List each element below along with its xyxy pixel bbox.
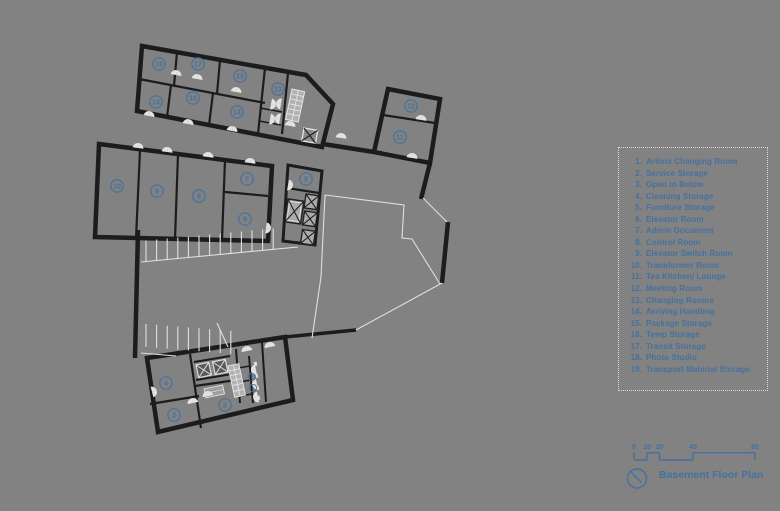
legend-item-label: Elevator Switch Room: [646, 248, 732, 260]
door-swing-icon: [192, 73, 204, 80]
legend-item-number: 10.: [625, 260, 642, 272]
room-label: 4: [160, 377, 172, 389]
legend-item-label: Changing Rooms: [646, 295, 714, 307]
legend-item-number: 1.: [625, 156, 642, 168]
svg-text:6: 6: [243, 217, 247, 224]
scale-label: 20: [656, 444, 664, 451]
legend-item-number: 8.: [625, 237, 642, 249]
legend-item: 15.Package Storage: [625, 318, 761, 330]
scale-label: 40: [689, 444, 697, 451]
legend-item-number: 14.: [625, 306, 642, 318]
door-swing-icon: [336, 132, 348, 138]
legend-item-number: 12.: [625, 283, 642, 295]
legend-panel: 1.Artists Changing Room2.Service Storage…: [618, 147, 768, 391]
legend-item-number: 16.: [625, 329, 642, 341]
legend-item: 11.Tea Kitchen/ Lounge: [625, 271, 761, 283]
legend-item: 8.Control Room: [625, 237, 761, 249]
legend-item-number: 17.: [625, 341, 642, 353]
legend-item-number: 9.: [625, 248, 642, 260]
room-label: 6: [239, 213, 251, 225]
legend-item: 13.Changing Rooms: [625, 295, 761, 307]
scale-label: 0: [632, 444, 636, 451]
scale-bar: [634, 452, 755, 460]
legend-item-label: Elevator Room: [646, 214, 704, 226]
room-label: 11: [394, 131, 406, 143]
legend-list: 1.Artists Changing Room2.Service Storage…: [625, 156, 761, 375]
legend-item: 14.Arriving Handling: [625, 306, 761, 318]
room-label: 19: [153, 58, 165, 70]
legend-item: 3.Open to Below: [625, 179, 761, 191]
legend-item-label: Meeting Room: [646, 283, 702, 295]
legend-item-label: Furniture Storage: [646, 202, 715, 214]
svg-text:16: 16: [189, 96, 197, 103]
legend-item-label: Admin Document: [646, 225, 714, 237]
legend-item-number: 6.: [625, 214, 642, 226]
svg-text:1: 1: [252, 386, 255, 392]
legend-item-label: Open to Below: [646, 179, 703, 191]
door-swing-icon: [171, 69, 183, 76]
legend-item: 16.Temp Storage: [625, 329, 761, 341]
room-label: 1: [248, 373, 255, 380]
legend-item: 9.Elevator Switch Room: [625, 248, 761, 260]
svg-text:12: 12: [407, 104, 415, 111]
legend-item-number: 11.: [625, 271, 642, 283]
legend-item-label: Control Room: [646, 237, 701, 249]
slab-edges: [312, 195, 447, 338]
room-label: 12: [405, 100, 417, 112]
legend-item-label: Arriving Handling: [646, 306, 715, 318]
legend-item: 2.Service Storage: [625, 168, 761, 180]
legend-item: 1.Artists Changing Room: [625, 156, 761, 168]
svg-text:19: 19: [155, 62, 163, 69]
room-label: 10: [111, 180, 123, 192]
legend-item-label: Cleaning Storage: [646, 191, 713, 203]
legend-item: 12.Meeting Room: [625, 283, 761, 295]
legend-item: 10.Transformer Room: [625, 260, 761, 272]
north-arrow-icon: [628, 469, 647, 488]
svg-text:5: 5: [304, 177, 308, 184]
legend-item-label: Tea Kitchen/ Lounge: [646, 271, 726, 283]
svg-text:7: 7: [245, 177, 249, 184]
legend-item-number: 18.: [625, 352, 642, 364]
svg-text:3: 3: [172, 413, 176, 420]
room-label: 17: [192, 58, 204, 70]
scale-label: 10: [643, 444, 651, 451]
room-label: 16: [187, 92, 199, 104]
legend-item: 19.Transport Material Storage: [625, 364, 761, 376]
door-swing-icon: [274, 113, 281, 125]
svg-text:8: 8: [197, 194, 201, 201]
svg-text:17: 17: [194, 62, 202, 69]
legend-item-label: Service Storage: [646, 168, 708, 180]
door-swing-icon: [270, 99, 277, 111]
legend-item: 6.Elevator Room: [625, 214, 761, 226]
svg-text:14: 14: [233, 110, 241, 117]
legend-item: 17.Transit Storage: [625, 341, 761, 353]
legend-item-label: Transit Storage: [646, 341, 706, 353]
room-label: 3: [168, 409, 180, 421]
legend-item-label: Photo Studio: [646, 352, 697, 364]
door-swing-icon: [231, 86, 243, 93]
legend-item: 5.Furniture Storage: [625, 202, 761, 214]
legend-item-number: 3.: [625, 179, 642, 191]
legend-item-number: 13.: [625, 295, 642, 307]
room-label: 9: [151, 185, 163, 197]
room-label: 14: [231, 106, 243, 118]
door-swing-icon: [241, 345, 253, 352]
basement-floor-plan-page: 191715181614131211109876543211 010204080…: [0, 0, 780, 511]
room-label: 15: [234, 70, 246, 82]
legend-item-number: 15.: [625, 318, 642, 330]
scale-bar-labels: 010204080: [632, 444, 759, 451]
legend-item-label: Transformer Room: [646, 260, 719, 272]
legend-item: 4.Cleaning Storage: [625, 191, 761, 203]
room-label: 7: [241, 173, 253, 185]
legend-item: 18.Photo Studio: [625, 352, 761, 364]
legend-item-label: Transport Material Storage: [646, 364, 750, 376]
legend-item-number: 2.: [625, 168, 642, 180]
svg-text:9: 9: [155, 189, 159, 196]
stair-top-block: [286, 89, 305, 122]
svg-text:10: 10: [113, 184, 121, 191]
elevator-cluster-icons: [285, 194, 319, 245]
legend-item-number: 7.: [625, 225, 642, 237]
svg-text:11: 11: [396, 135, 404, 142]
plan-title: Basement Floor Plan: [659, 469, 779, 481]
stair-bottom-block: [228, 364, 245, 398]
room-label: 5: [300, 173, 312, 185]
room-label: 2: [219, 399, 231, 411]
room-label: 13: [272, 83, 284, 95]
door-swing-icon: [275, 98, 282, 110]
legend-item-label: Temp Storage: [646, 329, 700, 341]
legend-item-number: 19.: [625, 364, 642, 376]
svg-text:1: 1: [251, 375, 254, 381]
svg-text:18: 18: [152, 100, 160, 107]
svg-text:15: 15: [236, 74, 244, 81]
legend-item-label: Package Storage: [646, 318, 712, 330]
legend-item-number: 5.: [625, 202, 642, 214]
svg-text:2: 2: [223, 403, 227, 410]
room-label: 8: [193, 190, 205, 202]
elevator-top-block-icon: [302, 128, 318, 143]
scale-label: 80: [751, 444, 759, 451]
legend-item-number: 4.: [625, 191, 642, 203]
svg-text:4: 4: [164, 381, 168, 388]
legend-item: 7.Admin Document: [625, 225, 761, 237]
legend-item-label: Artists Changing Room: [646, 156, 737, 168]
svg-text:13: 13: [274, 87, 282, 94]
room-label: 18: [150, 96, 162, 108]
